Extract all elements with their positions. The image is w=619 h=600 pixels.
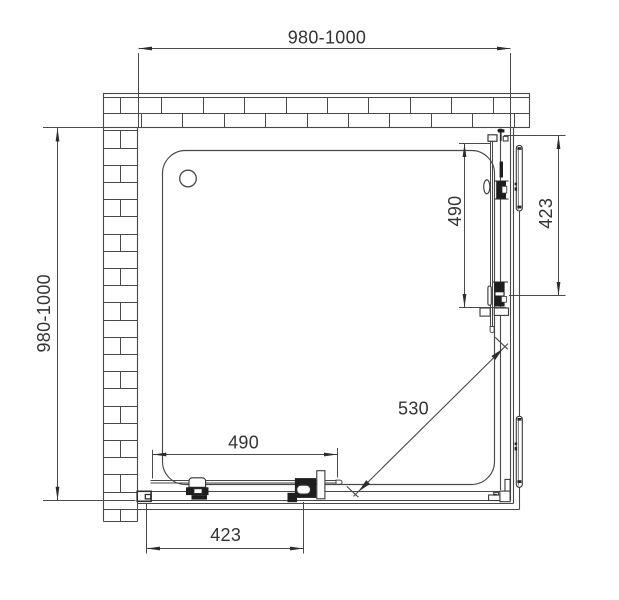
svg-text:490: 490 — [228, 432, 259, 452]
svg-text:423: 423 — [210, 525, 241, 545]
svg-text:980-1000: 980-1000 — [288, 28, 366, 48]
svg-text:980-1000: 980-1000 — [34, 274, 54, 352]
svg-text:423: 423 — [536, 198, 556, 229]
svg-text:530: 530 — [398, 399, 429, 419]
svg-text:490: 490 — [445, 196, 465, 227]
